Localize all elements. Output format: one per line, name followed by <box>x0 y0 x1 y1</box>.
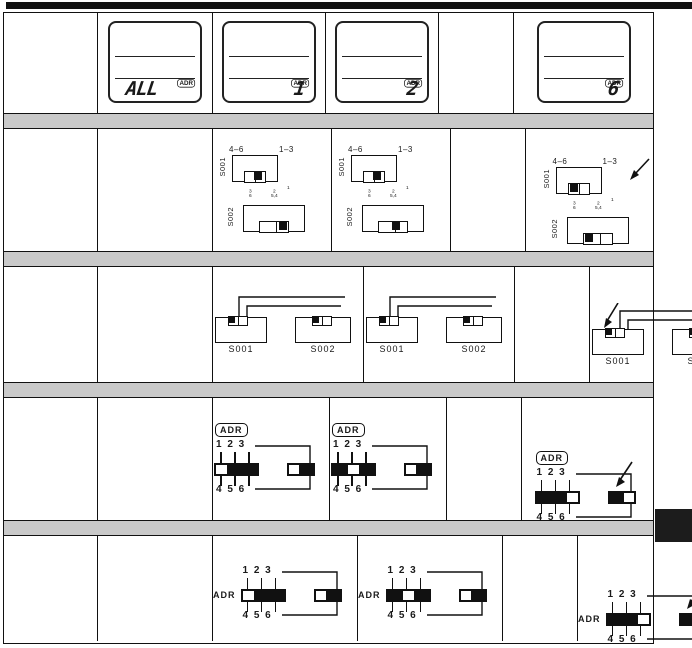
row-separator-band <box>4 382 653 398</box>
cell-empty <box>439 13 514 113</box>
cell-slide-1: S001 S002 <box>213 267 364 382</box>
leader-lines <box>213 289 353 319</box>
range-label: 1–3 <box>398 145 413 154</box>
dip-segment <box>229 463 244 476</box>
dip-segment <box>331 463 346 476</box>
tick-labels: 36 25,4 1 <box>332 189 450 204</box>
dip-segment <box>214 463 229 476</box>
s002-label: S002 <box>446 344 502 354</box>
slider-divider <box>389 317 390 325</box>
cell-empty <box>503 536 578 641</box>
switch-slider <box>228 316 248 326</box>
dip-digits-bottom: 4 5 6 <box>333 484 363 495</box>
s002-switch <box>672 329 692 355</box>
switch-slider <box>463 316 483 326</box>
dip-segment <box>361 463 376 476</box>
slide-switch-diagram: S001 S002 <box>213 289 363 359</box>
s001-switch <box>215 317 267 343</box>
cell-slide-2: S001 S002 <box>364 267 515 382</box>
row-slide-switches: S001 S002 S001 S002 <box>4 267 653 382</box>
dip-core: 1 2 3 4 5 6 <box>605 592 692 648</box>
dip-segment <box>418 463 432 476</box>
dip-segment <box>386 589 401 602</box>
dip-pair-box <box>608 491 636 504</box>
dip-core: 1 2 3 4 5 6 <box>240 568 352 624</box>
row-rotary-switches: 4–6 1–3 S001 36 25,4 1 S002 4–6 <box>4 129 653 251</box>
row-dip-text: ADR 1 2 3 4 5 6 ADR <box>4 536 653 641</box>
row-separator-band <box>4 113 653 129</box>
lcd-segment-line <box>544 56 624 57</box>
s002-switch <box>243 205 305 232</box>
dip-digits-bottom: 4 5 6 <box>216 484 246 495</box>
dip-core: 1 2 3 4 5 6 <box>385 568 497 624</box>
dip-switch-diagram: ADR 1 2 3 4 5 6 <box>213 420 329 498</box>
dip-segment <box>565 491 580 504</box>
cell-dip-1: ADR 1 2 3 4 5 6 <box>213 536 358 641</box>
dip-digits-top: 1 2 3 <box>216 439 246 450</box>
direction-arrow-icon <box>598 303 622 331</box>
lcd-segment-line <box>115 56 195 57</box>
range-label: 1–3 <box>279 145 294 154</box>
s002-label: S002 <box>226 207 235 227</box>
dip-segment <box>287 463 301 476</box>
range-label: 1–3 <box>603 157 618 166</box>
cell-empty <box>98 267 213 382</box>
cell-lcd-6: ADR 6 <box>514 13 653 113</box>
lcd-digit: ALL <box>124 78 158 100</box>
s001-label: S001 <box>366 344 418 354</box>
switch-knob <box>570 184 578 192</box>
s002-label: S002 <box>295 344 351 354</box>
cell-dip-6: ADR 1 2 3 4 5 6 <box>522 398 661 520</box>
switch-knob <box>254 172 262 180</box>
switch-slider <box>363 171 385 183</box>
cell-empty <box>98 398 213 520</box>
switch-knob <box>279 222 287 230</box>
switch-knob <box>464 317 470 323</box>
dip-segment <box>244 463 259 476</box>
rotary-switch-diagram: 4–6 1–3 S001 36 25,4 1 S002 <box>213 145 331 247</box>
direction-arrow-icon <box>625 157 651 183</box>
cell-empty <box>98 129 213 251</box>
dip-segment <box>608 491 622 504</box>
lcd-segment-line <box>229 56 309 57</box>
dip-segment <box>416 589 431 602</box>
switch-knob <box>606 329 612 335</box>
dip-segment <box>314 589 328 602</box>
s001-label: S001 <box>337 157 346 177</box>
direction-arrow-icon <box>596 460 636 490</box>
cell-empty <box>4 13 98 113</box>
rotary-switch-diagram: 4–6 1–3 S001 36 25,4 1 S002 <box>537 157 655 259</box>
lcd-display: ADR ALL <box>108 21 202 103</box>
dip-switch-diagram: ADR 1 2 3 4 5 6 <box>213 568 357 624</box>
dip-pair-box <box>287 463 315 476</box>
s001-label: S001 <box>592 356 644 366</box>
dip-segment <box>401 589 416 602</box>
cell-rotary-1: 4–6 1–3 S001 36 25,4 1 S002 <box>213 129 332 251</box>
switch-knob <box>585 234 593 242</box>
switch-slider <box>312 316 332 326</box>
dip-segment <box>473 589 487 602</box>
dip-switch-diagram: ADR 1 2 3 4 5 6 <box>578 592 692 648</box>
cell-empty <box>451 129 526 251</box>
dip-segment <box>328 589 342 602</box>
cell-dip-2: ADR 1 2 3 4 5 6 <box>330 398 447 520</box>
switch-slider <box>244 171 266 183</box>
switch-knob <box>229 317 235 323</box>
s002-label: S002 <box>550 219 559 239</box>
dip-pair-box <box>404 463 432 476</box>
switch-knob <box>392 222 400 230</box>
range-label: 4–6 <box>553 157 568 166</box>
dip-switch-diagram: ADR 1 2 3 4 5 6 <box>330 420 446 498</box>
adr-text-label: ADR <box>213 590 236 600</box>
s002-switch <box>362 205 424 232</box>
dip-segment <box>256 589 271 602</box>
switch-slider <box>568 183 590 195</box>
s001-switch <box>366 317 418 343</box>
cell-empty <box>447 398 522 520</box>
s001-label: S001 <box>215 344 267 354</box>
cell-lcd-1: ADR 1 <box>213 13 326 113</box>
switch-slider <box>583 233 613 245</box>
rotary-switch-diagram: 4–6 1–3 S001 36 25,4 1 S002 <box>332 145 450 247</box>
s001-switch <box>592 329 644 355</box>
cell-rotary-2: 4–6 1–3 S001 36 25,4 1 S002 <box>332 129 451 251</box>
cell-rotary-6: 4–6 1–3 S001 36 25,4 1 S002 <box>526 129 665 251</box>
switch-knob <box>373 172 381 180</box>
slider-divider <box>238 317 239 325</box>
s001-label: S001 <box>542 169 551 189</box>
s002-switch <box>446 317 502 343</box>
dip-segment <box>404 463 418 476</box>
adr-text-label: ADR <box>358 590 381 600</box>
cell-dip-6: ADR 1 2 3 4 5 6 <box>578 536 692 641</box>
dip-digits-top: 1 2 3 <box>243 565 273 576</box>
range-label: 4–6 <box>229 145 244 154</box>
slider-divider <box>473 317 474 325</box>
s002-label: S002 <box>345 207 354 227</box>
switch-slider <box>605 328 625 338</box>
dip-digits-bottom: 4 5 6 <box>608 634 638 645</box>
adr-text-label: ADR <box>578 614 601 624</box>
dip-pair-box <box>314 589 342 602</box>
lcd-digit: 2 <box>405 78 420 100</box>
s001-label: S001 <box>218 157 227 177</box>
cell-empty <box>4 536 98 641</box>
dip-digits-bottom: 4 5 6 <box>537 512 567 523</box>
switch-slider <box>259 221 289 233</box>
dip-digits-bottom: 4 5 6 <box>243 610 273 621</box>
adr-badge: ADR <box>177 79 195 88</box>
s001-switch <box>351 155 397 182</box>
address-settings-table: ADR ALL ADR 1 ADR 2 A <box>3 12 654 644</box>
s002-switch <box>295 317 351 343</box>
slider-divider <box>615 329 616 337</box>
tick-labels: 36 25,4 1 <box>537 201 655 216</box>
adr-badge: ADR <box>536 451 569 465</box>
dip-segment <box>301 463 315 476</box>
s001-switch <box>232 155 278 182</box>
dip-core: 1 2 3 4 5 6 <box>213 442 325 498</box>
slider-divider <box>579 184 580 194</box>
cell-lcd-all: ADR ALL <box>98 13 213 113</box>
dip-segment <box>346 463 361 476</box>
dip-segment <box>459 589 473 602</box>
row-lcd-display: ADR ALL ADR 1 ADR 2 A <box>4 13 653 113</box>
dip-switch-diagram: ADR 1 2 3 4 5 6 <box>534 448 650 526</box>
dip-digits-top: 1 2 3 <box>388 565 418 576</box>
tick-labels: 36 25,4 1 <box>213 189 331 204</box>
slide-switch-diagram: S001 S002 <box>590 301 692 371</box>
slide-switch-diagram: S001 S002 <box>364 289 514 359</box>
lcd-digit: 1 <box>292 78 307 100</box>
cell-empty <box>515 267 590 382</box>
dip-digits-top: 1 2 3 <box>537 467 567 478</box>
dip-digits-top: 1 2 3 <box>333 439 363 450</box>
row-dip-badge: ADR 1 2 3 4 5 6 ADR <box>4 398 653 520</box>
dip-pair-box <box>459 589 487 602</box>
top-rule <box>6 2 692 9</box>
lcd-display: ADR 6 <box>537 21 631 103</box>
switch-knob <box>313 317 319 323</box>
dip-segment <box>636 613 651 626</box>
dip-switch-diagram: ADR 1 2 3 4 5 6 <box>358 568 502 624</box>
cell-dip-2: ADR 1 2 3 4 5 6 <box>358 536 503 641</box>
cell-lcd-2: ADR 2 <box>326 13 439 113</box>
dip-segment <box>550 491 565 504</box>
dip-segment <box>606 613 621 626</box>
s001-switch <box>556 167 602 194</box>
switch-slider <box>379 316 399 326</box>
cell-empty <box>98 536 213 641</box>
lcd-display: ADR 2 <box>335 21 429 103</box>
range-label: 4–6 <box>348 145 363 154</box>
switch-slider <box>378 221 408 233</box>
cell-dip-1: ADR 1 2 3 4 5 6 <box>213 398 330 520</box>
adr-badge: ADR <box>215 423 248 437</box>
dip-segment <box>535 491 550 504</box>
cell-empty <box>4 267 98 382</box>
dip-core: 1 2 3 4 5 6 <box>330 442 442 498</box>
s002-label: S002 <box>672 356 692 366</box>
dip-segment <box>271 589 286 602</box>
dip-segment <box>679 613 692 626</box>
dip-digits-bottom: 4 5 6 <box>388 610 418 621</box>
slider-divider <box>600 234 601 244</box>
dip-segment <box>241 589 256 602</box>
adr-badge: ADR <box>332 423 365 437</box>
dip-segment <box>622 491 636 504</box>
cell-empty <box>4 129 98 251</box>
s002-switch <box>567 217 629 244</box>
lcd-segment-line <box>342 56 422 57</box>
cell-empty <box>4 398 98 520</box>
dip-segment <box>621 613 636 626</box>
leader-lines <box>364 289 504 319</box>
switch-knob <box>380 317 386 323</box>
dip-digits-top: 1 2 3 <box>608 589 638 600</box>
direction-arrow-icon <box>667 582 692 612</box>
dip-core: 1 2 3 4 5 6 <box>534 470 646 526</box>
slider-divider <box>322 317 323 325</box>
lcd-digit: 6 <box>607 78 622 100</box>
slider-divider <box>276 222 277 232</box>
dip-pair-box <box>679 613 692 626</box>
lcd-display: ADR 1 <box>222 21 316 103</box>
cell-slide-6: S001 S002 <box>590 267 692 382</box>
